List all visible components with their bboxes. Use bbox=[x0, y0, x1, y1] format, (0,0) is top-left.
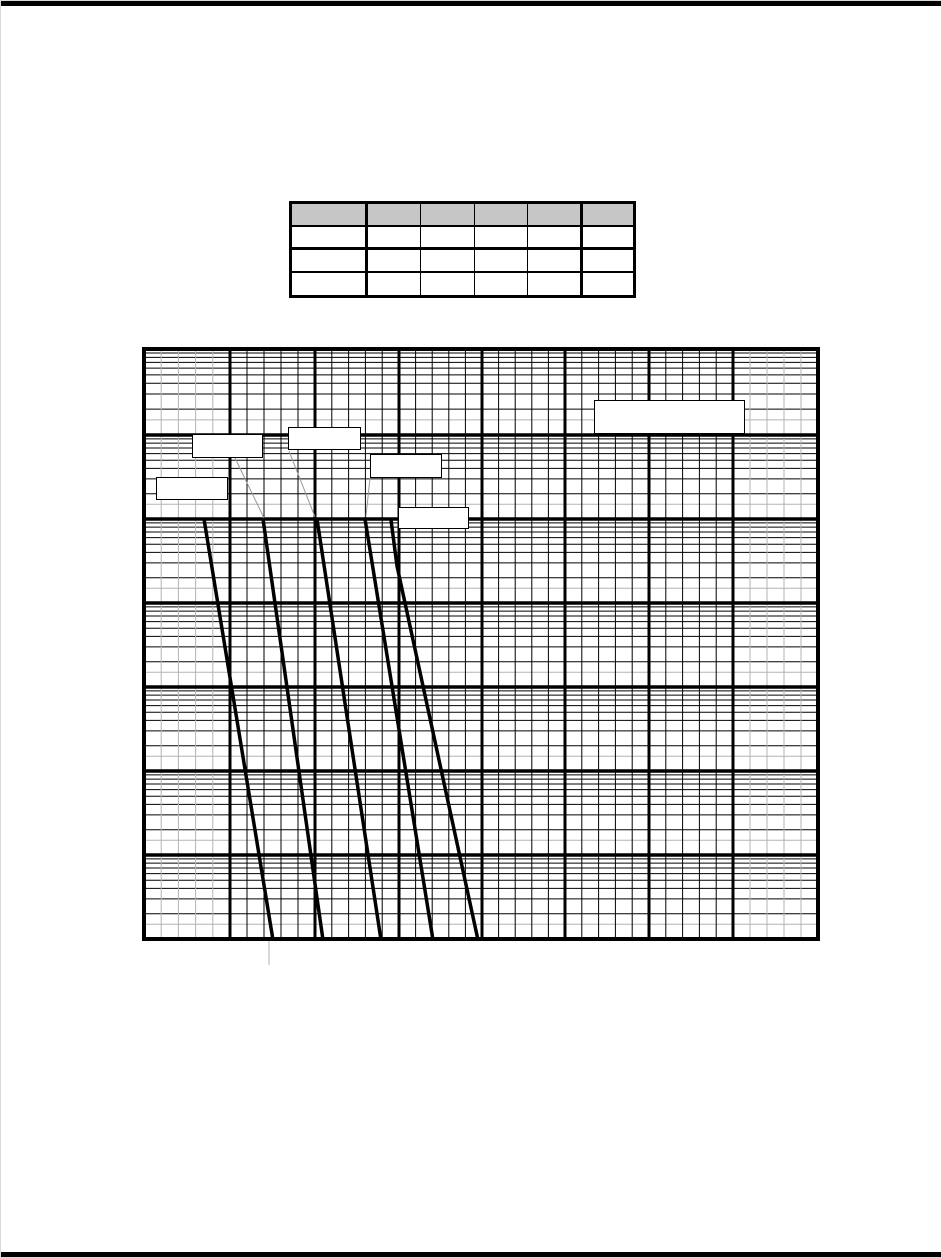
table-cell bbox=[475, 249, 528, 273]
table-cell bbox=[291, 272, 367, 297]
document-page bbox=[0, 0, 942, 1258]
table-cell bbox=[582, 249, 635, 273]
curve1-label-box bbox=[156, 477, 228, 500]
curve5-label-box bbox=[398, 507, 469, 529]
table-cell bbox=[291, 226, 367, 249]
table-header-cell bbox=[582, 203, 635, 227]
time-current-curve-chart bbox=[144, 349, 818, 939]
page-bottom-rule bbox=[1, 1252, 941, 1258]
table-cell bbox=[475, 272, 528, 297]
table-header-row bbox=[291, 203, 635, 227]
table-cell bbox=[367, 272, 421, 297]
table-header-cell bbox=[421, 203, 475, 227]
label-leader-line bbox=[366, 478, 370, 516]
table-cell bbox=[367, 226, 421, 249]
table-row bbox=[291, 272, 635, 297]
table-cell bbox=[421, 249, 475, 273]
table-header-cell bbox=[291, 203, 367, 227]
table-header-cell bbox=[367, 203, 421, 227]
table-cell bbox=[291, 249, 367, 273]
curve3-label-box bbox=[288, 427, 361, 450]
table-cell bbox=[582, 226, 635, 249]
table-cell bbox=[421, 226, 475, 249]
spec-table bbox=[289, 201, 636, 298]
table-header-cell bbox=[528, 203, 582, 227]
table-header-cell bbox=[475, 203, 528, 227]
table-row bbox=[291, 249, 635, 273]
table-cell bbox=[421, 272, 475, 297]
table-cell bbox=[475, 226, 528, 249]
table-cell bbox=[367, 249, 421, 273]
table-cell bbox=[528, 249, 582, 273]
curve-1 bbox=[204, 519, 273, 940]
table-cell bbox=[582, 272, 635, 297]
label-leader-line bbox=[289, 451, 315, 517]
chart-title-box bbox=[594, 400, 745, 434]
table-cell bbox=[528, 272, 582, 297]
spec-table-container bbox=[289, 201, 636, 298]
curve2-label-box bbox=[192, 434, 263, 458]
curve4-label-box bbox=[370, 454, 442, 478]
table-cell bbox=[528, 226, 582, 249]
page-top-rule bbox=[1, 1, 941, 6]
label-leader-line bbox=[235, 458, 264, 518]
table-row bbox=[291, 226, 635, 249]
